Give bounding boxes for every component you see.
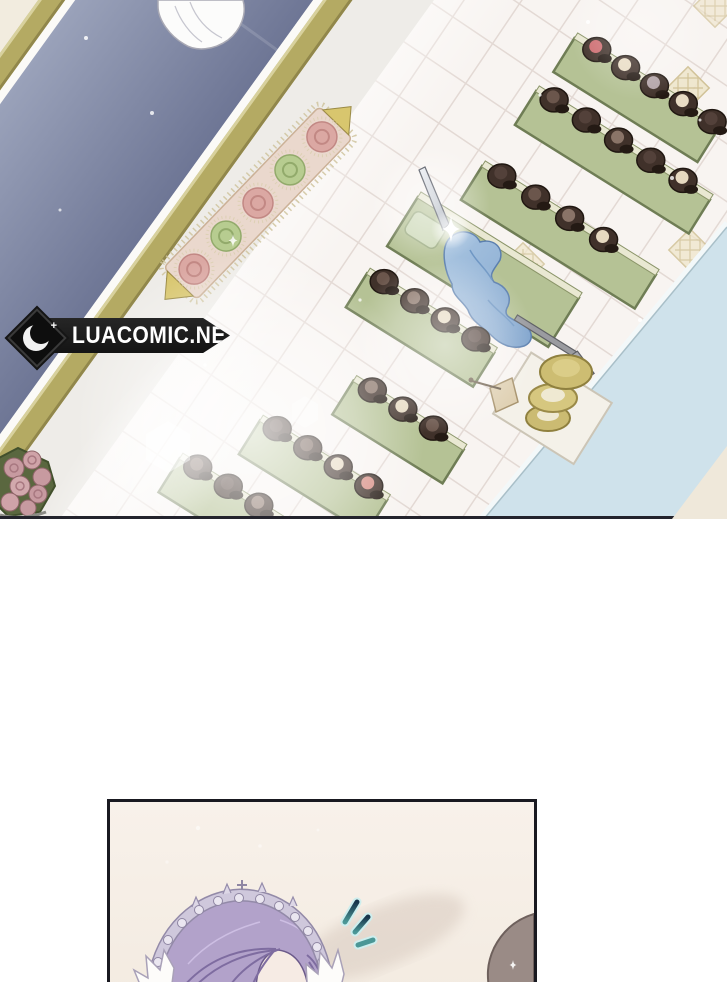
character-closeup-panel xyxy=(107,799,537,982)
cross-finial xyxy=(237,880,247,890)
shop-overview-panel xyxy=(0,0,727,519)
site-label: LUACOMIC.NET xyxy=(72,322,239,350)
shop-scene xyxy=(0,0,727,519)
closeup-scene xyxy=(110,802,534,982)
side-figure xyxy=(488,914,534,982)
comic-page: LUACOMIC.NET + xyxy=(0,0,727,982)
star-icon: + xyxy=(51,320,57,332)
crescent-moon-icon xyxy=(23,325,49,351)
sparkle xyxy=(165,826,319,864)
watermark-banner: LUACOMIC.NET xyxy=(38,318,230,353)
panel-gutter xyxy=(0,519,727,799)
